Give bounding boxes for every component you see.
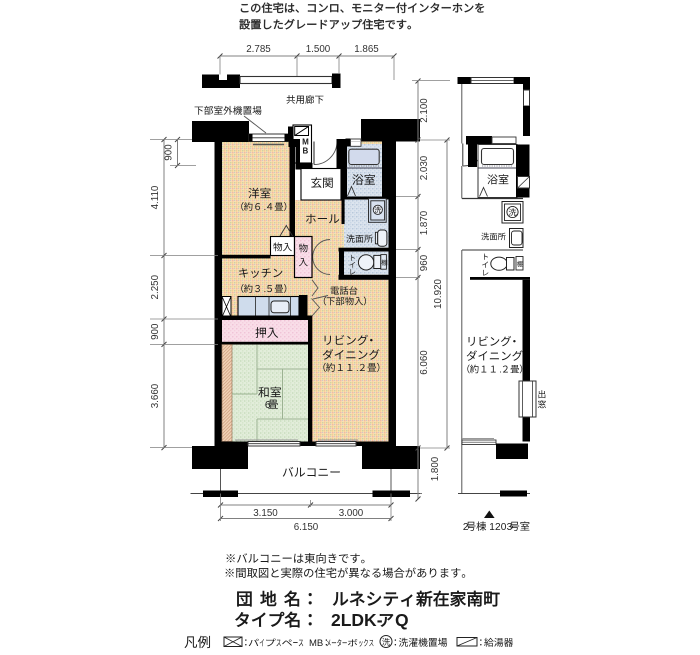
svg-text:4.110: 4.110 xyxy=(150,185,161,209)
svg-text:2.785: 2.785 xyxy=(246,44,271,55)
svg-text:B: B xyxy=(303,147,309,156)
svg-text:3.150: 3.150 xyxy=(253,508,278,519)
svg-text:6.060: 6.060 xyxy=(419,350,430,375)
svg-text:900: 900 xyxy=(150,323,161,340)
svg-text:6.150: 6.150 xyxy=(294,522,319,533)
svg-text:1.800: 1.800 xyxy=(430,456,441,481)
svg-text:Q: Q xyxy=(395,610,409,630)
svg-text:2.250: 2.250 xyxy=(150,274,161,299)
svg-text:.: . xyxy=(264,284,267,294)
svg-text:1.870: 1.870 xyxy=(419,210,430,235)
svg-text:.: . xyxy=(356,362,359,373)
svg-text:2.030: 2.030 xyxy=(419,155,430,180)
svg-text:960: 960 xyxy=(419,254,430,271)
svg-text:2.100: 2.100 xyxy=(419,98,430,123)
svg-text:3.000: 3.000 xyxy=(339,508,364,519)
svg-text:1.865: 1.865 xyxy=(354,44,379,55)
svg-text:1.500: 1.500 xyxy=(306,44,331,55)
svg-text:10.920: 10.920 xyxy=(433,278,444,309)
svg-text:M: M xyxy=(302,138,309,147)
svg-text:MB: MB xyxy=(309,638,323,649)
svg-text:2LDK-: 2LDK- xyxy=(331,610,383,630)
svg-text:.: . xyxy=(499,365,502,375)
svg-text:3.660: 3.660 xyxy=(150,383,161,408)
svg-text:.: . xyxy=(264,202,267,212)
svg-text:900: 900 xyxy=(164,144,175,161)
